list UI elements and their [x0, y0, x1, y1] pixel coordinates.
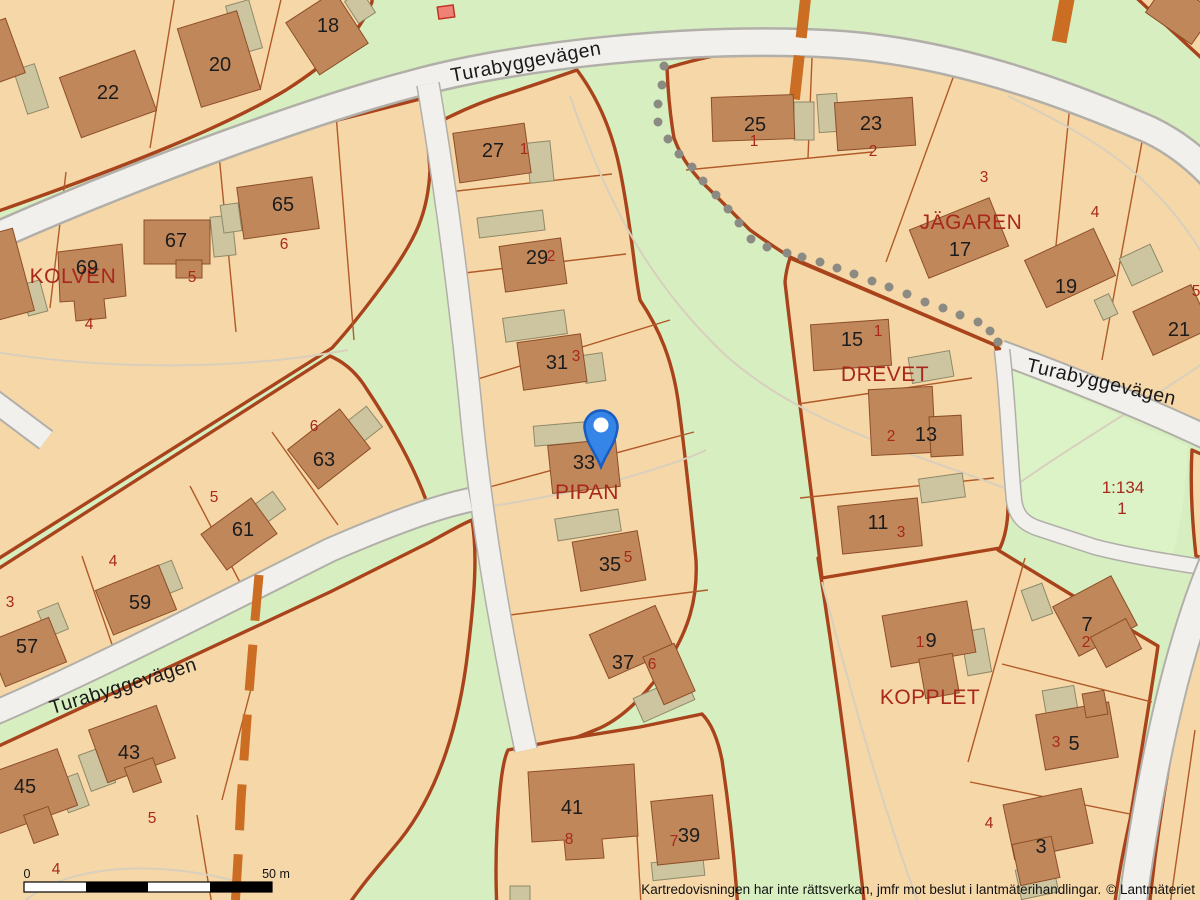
lot-number: 1 — [520, 141, 529, 158]
lot-number: 4 — [985, 815, 994, 832]
block-label-drevet: DREVET — [841, 363, 929, 386]
house-number: 20 — [209, 54, 231, 76]
map-viewport: Turabyggevägen Turabyggevägen Turabyggev… — [0, 0, 1200, 900]
highlighted-building — [437, 5, 455, 19]
house-number: 61 — [232, 519, 254, 541]
house-number: 9 — [925, 630, 936, 652]
lot-number: 5 — [1192, 283, 1200, 300]
lot-number: 5 — [188, 269, 197, 286]
lot-number: 1 — [874, 323, 883, 340]
lot-number: 4 — [1091, 204, 1100, 221]
house-number: 59 — [129, 592, 151, 614]
house-number: 27 — [482, 140, 504, 162]
lot-number: 6 — [310, 418, 319, 435]
house-number: 69 — [76, 257, 98, 279]
lot-number: 3 — [897, 524, 906, 541]
lot-number: 8 — [565, 831, 574, 848]
house-number: 13 — [915, 424, 937, 446]
block-label-pipan: PIPAN — [555, 481, 619, 504]
house-number: 21 — [1168, 319, 1190, 341]
house-number: 7 — [1081, 614, 1092, 636]
house-number: 15 — [841, 329, 863, 351]
lot-number: 3 — [1052, 734, 1061, 751]
lot-number: 2 — [869, 143, 878, 160]
lot-number: 4 — [109, 553, 118, 570]
parcel-designation: 1:134 — [1102, 478, 1145, 497]
lot-number: 2 — [1082, 634, 1091, 651]
house-number: 65 — [272, 194, 294, 216]
lot-number: 4 — [52, 861, 61, 878]
house-number: 29 — [526, 247, 548, 269]
house-number: 41 — [561, 797, 583, 819]
house-number: 23 — [860, 113, 882, 135]
lot-number: 6 — [280, 236, 289, 253]
cadastral-map[interactable]: Turabyggevägen Turabyggevägen Turabyggev… — [0, 0, 1200, 900]
house-number: 43 — [118, 742, 140, 764]
lot-number: 6 — [648, 656, 657, 673]
house-number: 5 — [1068, 733, 1079, 755]
lot-number: 5 — [210, 489, 219, 506]
house-number: 45 — [14, 776, 36, 798]
house-number: 17 — [949, 239, 971, 261]
house-number: 19 — [1055, 276, 1077, 298]
house-number: 22 — [97, 82, 119, 104]
disclaimer-text: Kartredovisningen har inte rättsverkan, … — [641, 882, 1101, 897]
lot-number: 3 — [572, 348, 581, 365]
lot-number: 3 — [6, 594, 15, 611]
lot-number: 5 — [148, 810, 157, 827]
lot-number: 3 — [980, 169, 989, 186]
house-number: 35 — [599, 554, 621, 576]
house-number: 11 — [868, 512, 889, 534]
map-disclaimer: Kartredovisningen har inte rättsverkan, … — [641, 882, 1195, 897]
lot-number: 7 — [670, 833, 679, 850]
lot-number: 2 — [887, 428, 896, 445]
house-number: 63 — [313, 449, 335, 471]
house-number: 67 — [165, 230, 187, 252]
lot-number: 4 — [85, 316, 94, 333]
lot-number: 2 — [547, 248, 556, 265]
block-label-kopplet: KOPPLET — [880, 686, 980, 709]
block-label-kolven: KOLVEN — [30, 265, 117, 288]
house-number: 18 — [317, 15, 339, 37]
copyright-text: © Lantmäteriet — [1106, 882, 1195, 897]
block-label-jagaren: JÄGAREN — [920, 211, 1023, 234]
lot-number: 5 — [624, 549, 633, 566]
house-number: 57 — [16, 636, 38, 658]
scale-bar-end-label: 50 m — [262, 867, 290, 881]
lot-number: 1 — [750, 133, 759, 150]
scale-bar-start-label: 0 — [24, 867, 31, 881]
parcel-lot-number: 1 — [1117, 499, 1126, 518]
house-number: 39 — [678, 825, 700, 847]
house-number: 31 — [546, 352, 568, 374]
house-number: 3 — [1035, 836, 1046, 858]
house-number: 37 — [612, 652, 634, 674]
lot-number: 1 — [916, 634, 925, 651]
house-number: 33 — [573, 452, 595, 474]
